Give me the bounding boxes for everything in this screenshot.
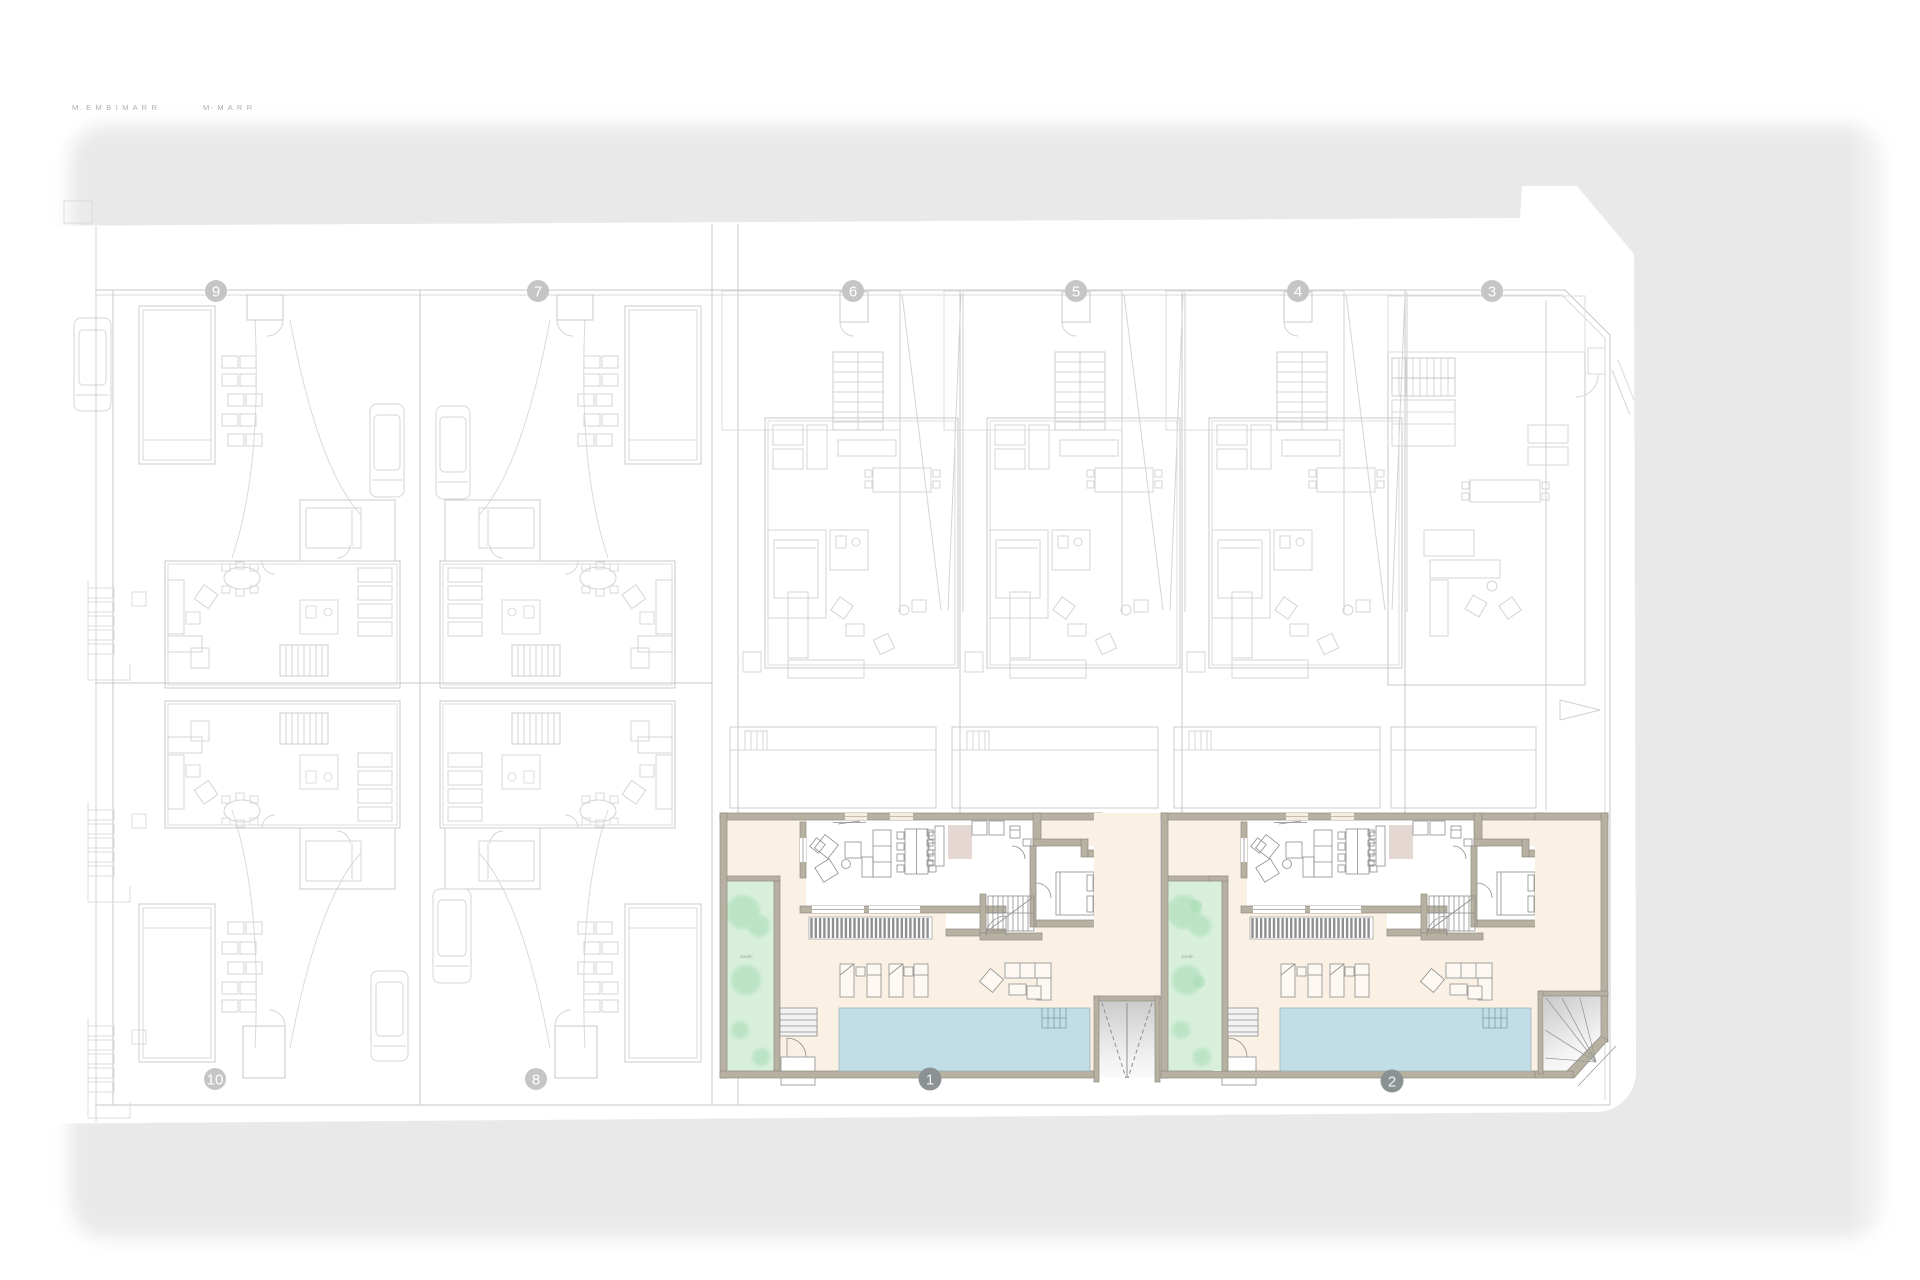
svg-text:9: 9 — [212, 284, 220, 301]
svg-text:Jardín: Jardín — [740, 954, 753, 959]
svg-text:10: 10 — [207, 1072, 224, 1089]
svg-text:3: 3 — [1488, 284, 1496, 301]
svg-text:7: 7 — [534, 284, 542, 301]
svg-text:M- M A R R: M- M A R R — [203, 103, 253, 112]
svg-text:4: 4 — [1294, 284, 1302, 301]
svg-text:2: 2 — [1388, 1074, 1396, 1091]
svg-text:6: 6 — [849, 284, 857, 301]
svg-text:5: 5 — [1072, 284, 1080, 301]
svg-text:8: 8 — [532, 1072, 540, 1089]
svg-text:1: 1 — [926, 1072, 934, 1089]
svg-text:M. E M B I M A R R: M. E M B I M A R R — [72, 103, 158, 112]
